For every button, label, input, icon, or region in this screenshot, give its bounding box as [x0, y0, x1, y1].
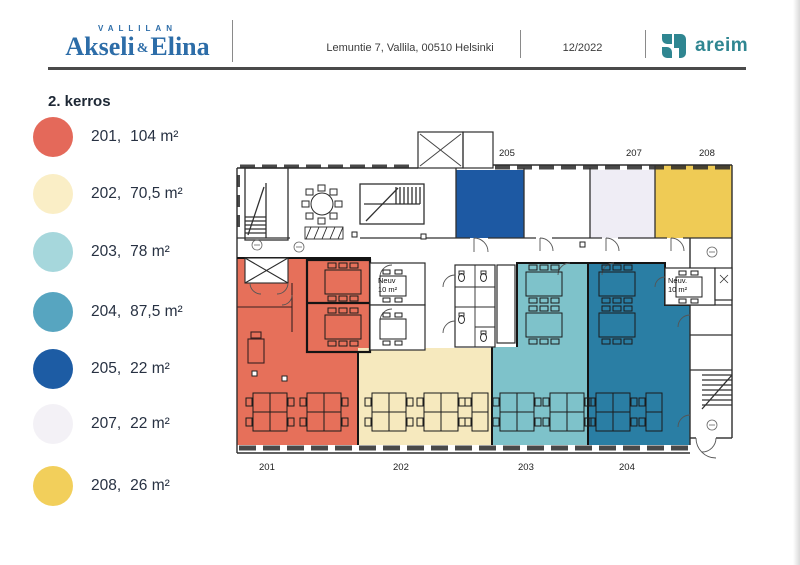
- legend-item-204: 204,87,5 m²: [33, 291, 183, 333]
- legend-item-207: 207,22 m²: [33, 403, 170, 445]
- legend-swatch-208: [33, 466, 73, 506]
- label-201: 201: [259, 462, 275, 473]
- legend-item-203: 203,78 m²: [33, 231, 170, 273]
- legend-item-202: 202,70,5 m²: [33, 173, 183, 215]
- elevator-201-icon: [245, 258, 288, 283]
- room-205-area: [456, 170, 524, 238]
- meeting-right-line2: 10 m²: [668, 285, 688, 294]
- legend-swatch-205: [33, 349, 73, 389]
- legend-item-205: 205,22 m²: [33, 348, 170, 390]
- floor-plan: 205 207 208 201 202 203 204 Neuv 10 m² N…: [230, 125, 795, 495]
- legend-label-202: 202,70,5 m²: [91, 185, 183, 203]
- areim-logo-icon: [660, 32, 688, 60]
- legend-swatch-203: [33, 232, 73, 272]
- legend-label-207: 207,22 m²: [91, 415, 170, 433]
- floorplan-sheet: { "header": { "brand_top": "VALLILAN", "…: [0, 0, 800, 565]
- legend-label-201: 201,104 m²: [91, 128, 178, 146]
- label-204: 204: [619, 462, 635, 473]
- areim-logo: areim: [660, 32, 748, 60]
- room-legend: 201,104 m² 202,70,5 m² 203,78 m² 204,87,…: [33, 0, 223, 565]
- date-text: 12/2022: [540, 42, 625, 54]
- room-207-area: [590, 170, 655, 238]
- floor-plan-drawing: 205 207 208 201 202 203 204 Neuv 10 m² N…: [230, 125, 795, 495]
- legend-swatch-202: [33, 174, 73, 214]
- areim-logo-text: areim: [695, 35, 748, 57]
- legend-label-204: 204,87,5 m²: [91, 303, 183, 321]
- elevator-icon: [420, 134, 461, 166]
- address-text: Lemuntie 7, Vallila, 00510 Helsinki: [300, 42, 520, 54]
- legend-label-208: 208,26 m²: [91, 477, 170, 495]
- room-206-area: [524, 170, 590, 238]
- legend-item-208: 208,26 m²: [33, 465, 170, 507]
- legend-label-203: 203,78 m²: [91, 243, 170, 261]
- legend-swatch-204: [33, 292, 73, 332]
- header-divider-3: [645, 30, 646, 58]
- legend-item-201: 201,104 m²: [33, 116, 178, 158]
- meeting-right-line1: Neuv.: [668, 276, 687, 285]
- meeting-left-line1: Neuv: [378, 276, 396, 285]
- label-203: 203: [518, 462, 534, 473]
- legend-swatch-207: [33, 404, 73, 444]
- label-208: 208: [699, 148, 715, 159]
- header-divider-2: [520, 30, 521, 58]
- label-202: 202: [393, 462, 409, 473]
- label-205: 205: [499, 148, 515, 159]
- meeting-left-line2: 10 m²: [378, 285, 398, 294]
- room-208-area: [655, 165, 732, 238]
- header-divider-1: [232, 20, 233, 62]
- label-207: 207: [626, 148, 642, 159]
- legend-swatch-201: [33, 117, 73, 157]
- page-edge-shadow: [793, 0, 800, 565]
- legend-label-205: 205,22 m²: [91, 360, 170, 378]
